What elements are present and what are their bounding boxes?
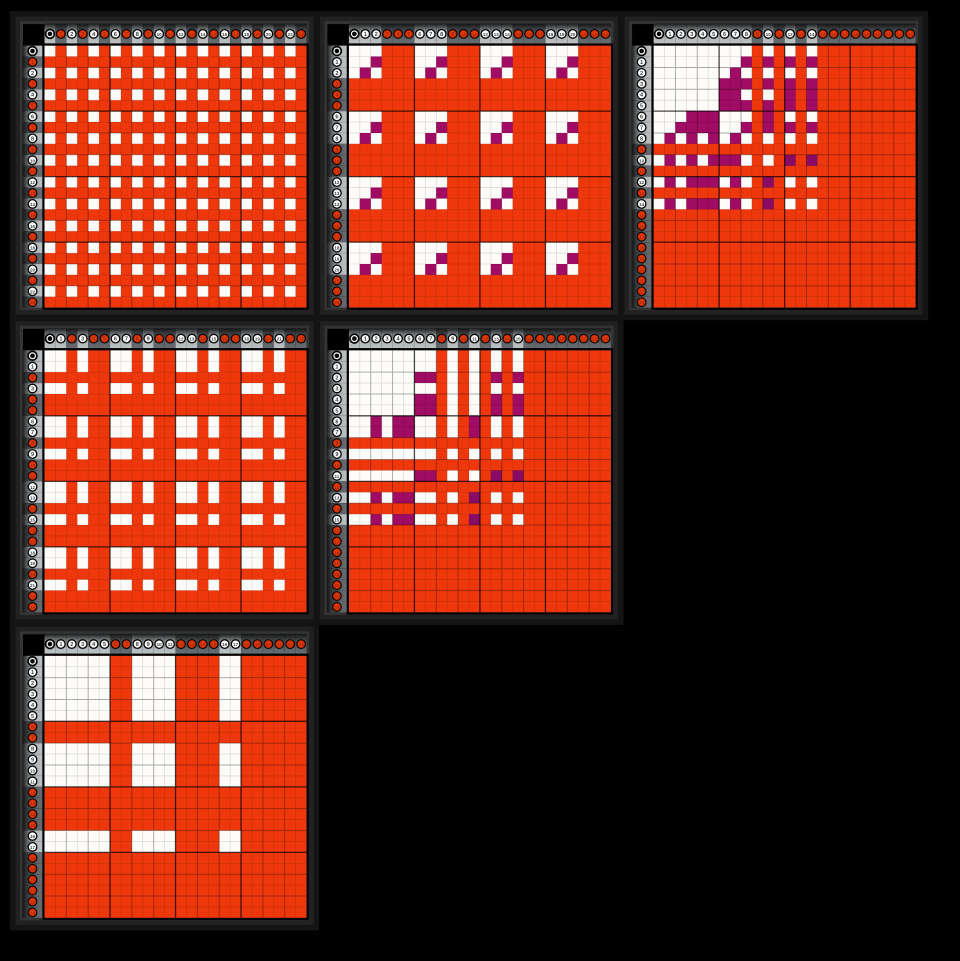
svg-text:5: 5: [103, 32, 106, 38]
svg-text:3: 3: [335, 82, 338, 88]
svg-text:3: 3: [81, 642, 84, 648]
svg-text:13: 13: [334, 191, 340, 196]
svg-text:7: 7: [31, 430, 34, 436]
svg-text:11: 11: [168, 337, 173, 342]
svg-text:3: 3: [31, 82, 34, 88]
svg-text:2: 2: [70, 32, 73, 38]
svg-text:7: 7: [429, 337, 432, 343]
svg-text:21: 21: [277, 337, 283, 342]
svg-text:19: 19: [255, 337, 261, 342]
svg-text:22: 22: [334, 594, 340, 599]
svg-text:11: 11: [30, 169, 35, 174]
svg-text:7: 7: [125, 337, 128, 343]
svg-text:16: 16: [831, 32, 837, 37]
svg-text:20: 20: [266, 32, 272, 37]
svg-text:14: 14: [30, 812, 36, 817]
svg-text:15: 15: [30, 213, 36, 218]
svg-text:5: 5: [103, 337, 106, 343]
svg-text:21: 21: [30, 889, 36, 894]
svg-text:3: 3: [386, 32, 389, 38]
svg-text:8: 8: [440, 337, 443, 343]
svg-text:9: 9: [756, 32, 759, 38]
svg-text:21: 21: [581, 32, 587, 37]
svg-text:3: 3: [640, 82, 643, 88]
svg-text:1: 1: [364, 337, 367, 343]
svg-text:3: 3: [335, 387, 338, 393]
svg-text:1: 1: [640, 60, 643, 66]
svg-text:17: 17: [30, 235, 36, 240]
svg-text:9: 9: [451, 32, 454, 38]
svg-text:2: 2: [375, 337, 378, 343]
svg-text:16: 16: [639, 224, 645, 229]
svg-text:11: 11: [472, 32, 477, 37]
svg-text:1: 1: [31, 60, 34, 66]
svg-text:20: 20: [30, 878, 36, 883]
svg-text:13: 13: [334, 496, 340, 501]
svg-text:7: 7: [125, 32, 128, 38]
svg-text:22: 22: [288, 337, 294, 342]
svg-text:8: 8: [136, 337, 139, 343]
svg-text:21: 21: [30, 278, 36, 283]
svg-text:15: 15: [516, 32, 522, 37]
svg-text:5: 5: [712, 32, 715, 38]
svg-text:9: 9: [640, 147, 643, 153]
svg-text:23: 23: [30, 605, 36, 610]
svg-text:8: 8: [31, 136, 34, 142]
svg-text:21: 21: [639, 278, 645, 283]
svg-text:6: 6: [31, 725, 34, 731]
svg-text:7: 7: [734, 32, 737, 38]
svg-text:22: 22: [897, 32, 903, 37]
svg-text:2: 2: [31, 681, 34, 687]
svg-text:14: 14: [505, 337, 511, 342]
svg-text:13: 13: [189, 642, 195, 647]
svg-text:17: 17: [537, 337, 543, 342]
svg-text:17: 17: [233, 642, 239, 647]
svg-text:2: 2: [70, 337, 73, 343]
svg-text:17: 17: [639, 235, 645, 240]
svg-text:16: 16: [527, 337, 533, 342]
svg-text:10: 10: [334, 158, 340, 163]
svg-text:5: 5: [335, 104, 338, 110]
svg-text:8: 8: [136, 32, 139, 38]
svg-text:12: 12: [178, 32, 184, 37]
svg-text:17: 17: [537, 32, 543, 37]
svg-text:13: 13: [494, 32, 500, 37]
svg-text:22: 22: [592, 32, 598, 37]
svg-text:14: 14: [809, 32, 815, 37]
svg-text:1: 1: [668, 32, 671, 38]
svg-text:5: 5: [31, 104, 34, 110]
svg-text:17: 17: [233, 32, 239, 37]
svg-text:5: 5: [31, 714, 34, 720]
svg-text:10: 10: [157, 642, 163, 647]
svg-text:14: 14: [334, 507, 340, 512]
svg-text:2: 2: [375, 32, 378, 38]
svg-text:10: 10: [766, 32, 772, 37]
svg-text:21: 21: [30, 583, 36, 588]
svg-text:1: 1: [59, 642, 62, 648]
svg-text:10: 10: [157, 32, 163, 37]
svg-text:18: 18: [30, 550, 36, 555]
svg-text:9: 9: [147, 32, 150, 38]
svg-text:19: 19: [255, 642, 261, 647]
svg-text:20: 20: [334, 572, 340, 577]
svg-text:5: 5: [407, 32, 410, 38]
svg-text:11: 11: [30, 474, 35, 479]
svg-text:20: 20: [875, 32, 881, 37]
svg-text:15: 15: [639, 213, 645, 218]
svg-text:14: 14: [200, 337, 206, 342]
svg-text:8: 8: [440, 32, 443, 38]
svg-text:19: 19: [255, 32, 261, 37]
svg-text:14: 14: [200, 642, 206, 647]
svg-text:11: 11: [335, 474, 340, 479]
svg-text:14: 14: [639, 202, 645, 207]
svg-text:9: 9: [335, 452, 338, 458]
svg-text:18: 18: [244, 32, 250, 37]
svg-text:2: 2: [679, 32, 682, 38]
svg-text:13: 13: [639, 191, 645, 196]
svg-text:16: 16: [30, 224, 36, 229]
svg-text:2: 2: [31, 71, 34, 77]
svg-text:23: 23: [639, 300, 645, 305]
svg-text:20: 20: [570, 32, 576, 37]
svg-text:13: 13: [30, 191, 36, 196]
svg-text:2: 2: [335, 376, 338, 382]
svg-text:7: 7: [31, 126, 34, 132]
svg-text:3: 3: [81, 32, 84, 38]
svg-text:7: 7: [335, 126, 338, 132]
svg-text:15: 15: [334, 518, 340, 523]
svg-text:16: 16: [30, 834, 36, 839]
svg-text:18: 18: [30, 246, 36, 251]
svg-text:8: 8: [745, 32, 748, 38]
svg-text:1: 1: [31, 670, 34, 676]
svg-text:1: 1: [59, 32, 62, 38]
svg-text:9: 9: [147, 642, 150, 648]
svg-text:20: 20: [30, 267, 36, 272]
svg-text:11: 11: [168, 32, 173, 37]
svg-text:18: 18: [548, 32, 554, 37]
svg-text:23: 23: [299, 642, 305, 647]
svg-text:19: 19: [639, 257, 645, 262]
svg-text:15: 15: [211, 337, 217, 342]
svg-text:12: 12: [483, 337, 489, 342]
svg-text:13: 13: [30, 496, 36, 501]
svg-text:7: 7: [429, 32, 432, 38]
svg-text:20: 20: [570, 337, 576, 342]
svg-text:17: 17: [842, 32, 848, 37]
svg-text:10: 10: [461, 32, 467, 37]
svg-text:10: 10: [461, 337, 467, 342]
svg-text:21: 21: [334, 583, 340, 588]
svg-text:1: 1: [335, 60, 338, 66]
svg-text:8: 8: [335, 441, 338, 447]
svg-text:20: 20: [334, 267, 340, 272]
svg-text:3: 3: [81, 337, 84, 343]
svg-text:10: 10: [30, 158, 36, 163]
svg-text:8: 8: [31, 747, 34, 753]
svg-text:20: 20: [639, 267, 645, 272]
svg-text:6: 6: [335, 115, 338, 121]
svg-text:10: 10: [30, 768, 36, 773]
svg-text:21: 21: [277, 32, 283, 37]
svg-text:6: 6: [114, 337, 117, 343]
svg-text:15: 15: [211, 642, 217, 647]
svg-text:9: 9: [147, 337, 150, 343]
svg-text:23: 23: [299, 337, 305, 342]
svg-text:15: 15: [516, 337, 522, 342]
svg-text:19: 19: [334, 561, 340, 566]
svg-text:11: 11: [335, 169, 340, 174]
svg-text:1: 1: [335, 365, 338, 371]
svg-text:2: 2: [31, 376, 34, 382]
svg-text:9: 9: [451, 337, 454, 343]
svg-text:7: 7: [640, 126, 643, 132]
svg-text:12: 12: [639, 180, 645, 185]
svg-text:18: 18: [334, 246, 340, 251]
svg-text:18: 18: [244, 337, 250, 342]
svg-text:3: 3: [31, 692, 34, 698]
svg-text:21: 21: [277, 642, 283, 647]
svg-text:12: 12: [788, 32, 794, 37]
svg-text:8: 8: [335, 136, 338, 142]
svg-text:21: 21: [334, 278, 340, 283]
svg-text:2: 2: [335, 71, 338, 77]
svg-text:19: 19: [559, 32, 565, 37]
svg-text:20: 20: [266, 337, 272, 342]
svg-text:9: 9: [31, 452, 34, 458]
svg-text:15: 15: [820, 32, 826, 37]
svg-text:22: 22: [334, 289, 340, 294]
svg-text:17: 17: [30, 845, 36, 850]
svg-text:18: 18: [244, 642, 250, 647]
svg-text:2: 2: [70, 642, 73, 648]
svg-text:16: 16: [334, 528, 340, 533]
svg-text:6: 6: [31, 419, 34, 425]
svg-text:7: 7: [31, 736, 34, 742]
svg-text:20: 20: [266, 642, 272, 647]
svg-text:5: 5: [103, 642, 106, 648]
svg-text:15: 15: [30, 518, 36, 523]
svg-text:23: 23: [908, 32, 914, 37]
svg-text:5: 5: [640, 104, 643, 110]
svg-text:10: 10: [639, 158, 645, 163]
svg-text:1: 1: [31, 365, 34, 371]
svg-text:1: 1: [364, 32, 367, 38]
svg-text:16: 16: [222, 337, 228, 342]
svg-text:22: 22: [30, 900, 36, 905]
svg-text:14: 14: [30, 507, 36, 512]
svg-text:8: 8: [31, 441, 34, 447]
svg-text:11: 11: [777, 32, 782, 37]
svg-text:23: 23: [334, 605, 340, 610]
svg-text:21: 21: [886, 32, 892, 37]
svg-text:19: 19: [30, 257, 36, 262]
svg-text:6: 6: [31, 115, 34, 121]
svg-text:9: 9: [31, 758, 34, 764]
svg-text:6: 6: [335, 419, 338, 425]
svg-text:23: 23: [603, 32, 609, 37]
svg-text:22: 22: [639, 289, 645, 294]
svg-text:12: 12: [30, 485, 36, 490]
svg-text:13: 13: [494, 337, 500, 342]
svg-text:6: 6: [418, 337, 421, 343]
svg-text:19: 19: [30, 867, 36, 872]
svg-text:23: 23: [30, 300, 36, 305]
svg-text:3: 3: [386, 337, 389, 343]
svg-text:12: 12: [334, 180, 340, 185]
svg-text:20: 20: [30, 572, 36, 577]
svg-text:12: 12: [178, 642, 184, 647]
svg-text:13: 13: [799, 32, 805, 37]
svg-text:1: 1: [59, 337, 62, 343]
svg-text:5: 5: [335, 408, 338, 414]
svg-text:22: 22: [288, 642, 294, 647]
svg-text:11: 11: [472, 337, 477, 342]
svg-text:22: 22: [30, 289, 36, 294]
svg-text:8: 8: [136, 642, 139, 648]
svg-text:6: 6: [114, 32, 117, 38]
svg-text:12: 12: [30, 790, 36, 795]
svg-text:6: 6: [723, 32, 726, 38]
svg-text:19: 19: [559, 337, 565, 342]
svg-text:16: 16: [527, 32, 533, 37]
svg-text:23: 23: [334, 300, 340, 305]
svg-text:12: 12: [483, 32, 489, 37]
svg-text:10: 10: [157, 337, 163, 342]
svg-text:3: 3: [690, 32, 693, 38]
svg-text:16: 16: [30, 528, 36, 533]
svg-text:6: 6: [418, 32, 421, 38]
svg-text:11: 11: [639, 169, 644, 174]
svg-text:19: 19: [864, 32, 870, 37]
svg-text:7: 7: [335, 430, 338, 436]
svg-text:18: 18: [853, 32, 859, 37]
svg-text:18: 18: [334, 550, 340, 555]
svg-text:22: 22: [30, 594, 36, 599]
svg-text:13: 13: [189, 337, 195, 342]
svg-text:11: 11: [30, 779, 35, 784]
svg-text:5: 5: [407, 337, 410, 343]
svg-text:18: 18: [548, 337, 554, 342]
svg-text:5: 5: [31, 408, 34, 414]
svg-text:7: 7: [125, 642, 128, 648]
svg-text:19: 19: [30, 561, 36, 566]
svg-text:22: 22: [288, 32, 294, 37]
svg-text:16: 16: [334, 224, 340, 229]
svg-text:15: 15: [211, 32, 217, 37]
svg-text:15: 15: [334, 213, 340, 218]
svg-text:11: 11: [168, 642, 173, 647]
svg-text:2: 2: [640, 71, 643, 77]
svg-text:14: 14: [334, 202, 340, 207]
svg-text:15: 15: [30, 823, 36, 828]
svg-text:6: 6: [640, 115, 643, 121]
svg-text:17: 17: [334, 539, 340, 544]
svg-text:21: 21: [581, 337, 587, 342]
svg-text:9: 9: [31, 147, 34, 153]
svg-text:16: 16: [222, 32, 228, 37]
svg-text:12: 12: [178, 337, 184, 342]
svg-text:12: 12: [334, 485, 340, 490]
svg-text:18: 18: [30, 856, 36, 861]
svg-text:23: 23: [603, 337, 609, 342]
svg-text:14: 14: [505, 32, 511, 37]
svg-text:14: 14: [30, 202, 36, 207]
svg-text:9: 9: [335, 147, 338, 153]
svg-text:19: 19: [334, 257, 340, 262]
svg-text:3: 3: [31, 387, 34, 393]
svg-text:14: 14: [200, 32, 206, 37]
svg-text:13: 13: [30, 801, 36, 806]
svg-text:8: 8: [640, 136, 643, 142]
svg-text:23: 23: [30, 910, 36, 915]
svg-text:22: 22: [592, 337, 598, 342]
svg-text:12: 12: [30, 180, 36, 185]
svg-text:18: 18: [639, 246, 645, 251]
svg-text:10: 10: [30, 463, 36, 468]
svg-text:13: 13: [189, 32, 195, 37]
svg-text:16: 16: [222, 642, 228, 647]
svg-text:17: 17: [233, 337, 239, 342]
svg-text:17: 17: [30, 539, 36, 544]
svg-text:10: 10: [334, 463, 340, 468]
svg-text:17: 17: [334, 235, 340, 240]
svg-text:6: 6: [114, 642, 117, 648]
svg-text:23: 23: [299, 32, 305, 37]
